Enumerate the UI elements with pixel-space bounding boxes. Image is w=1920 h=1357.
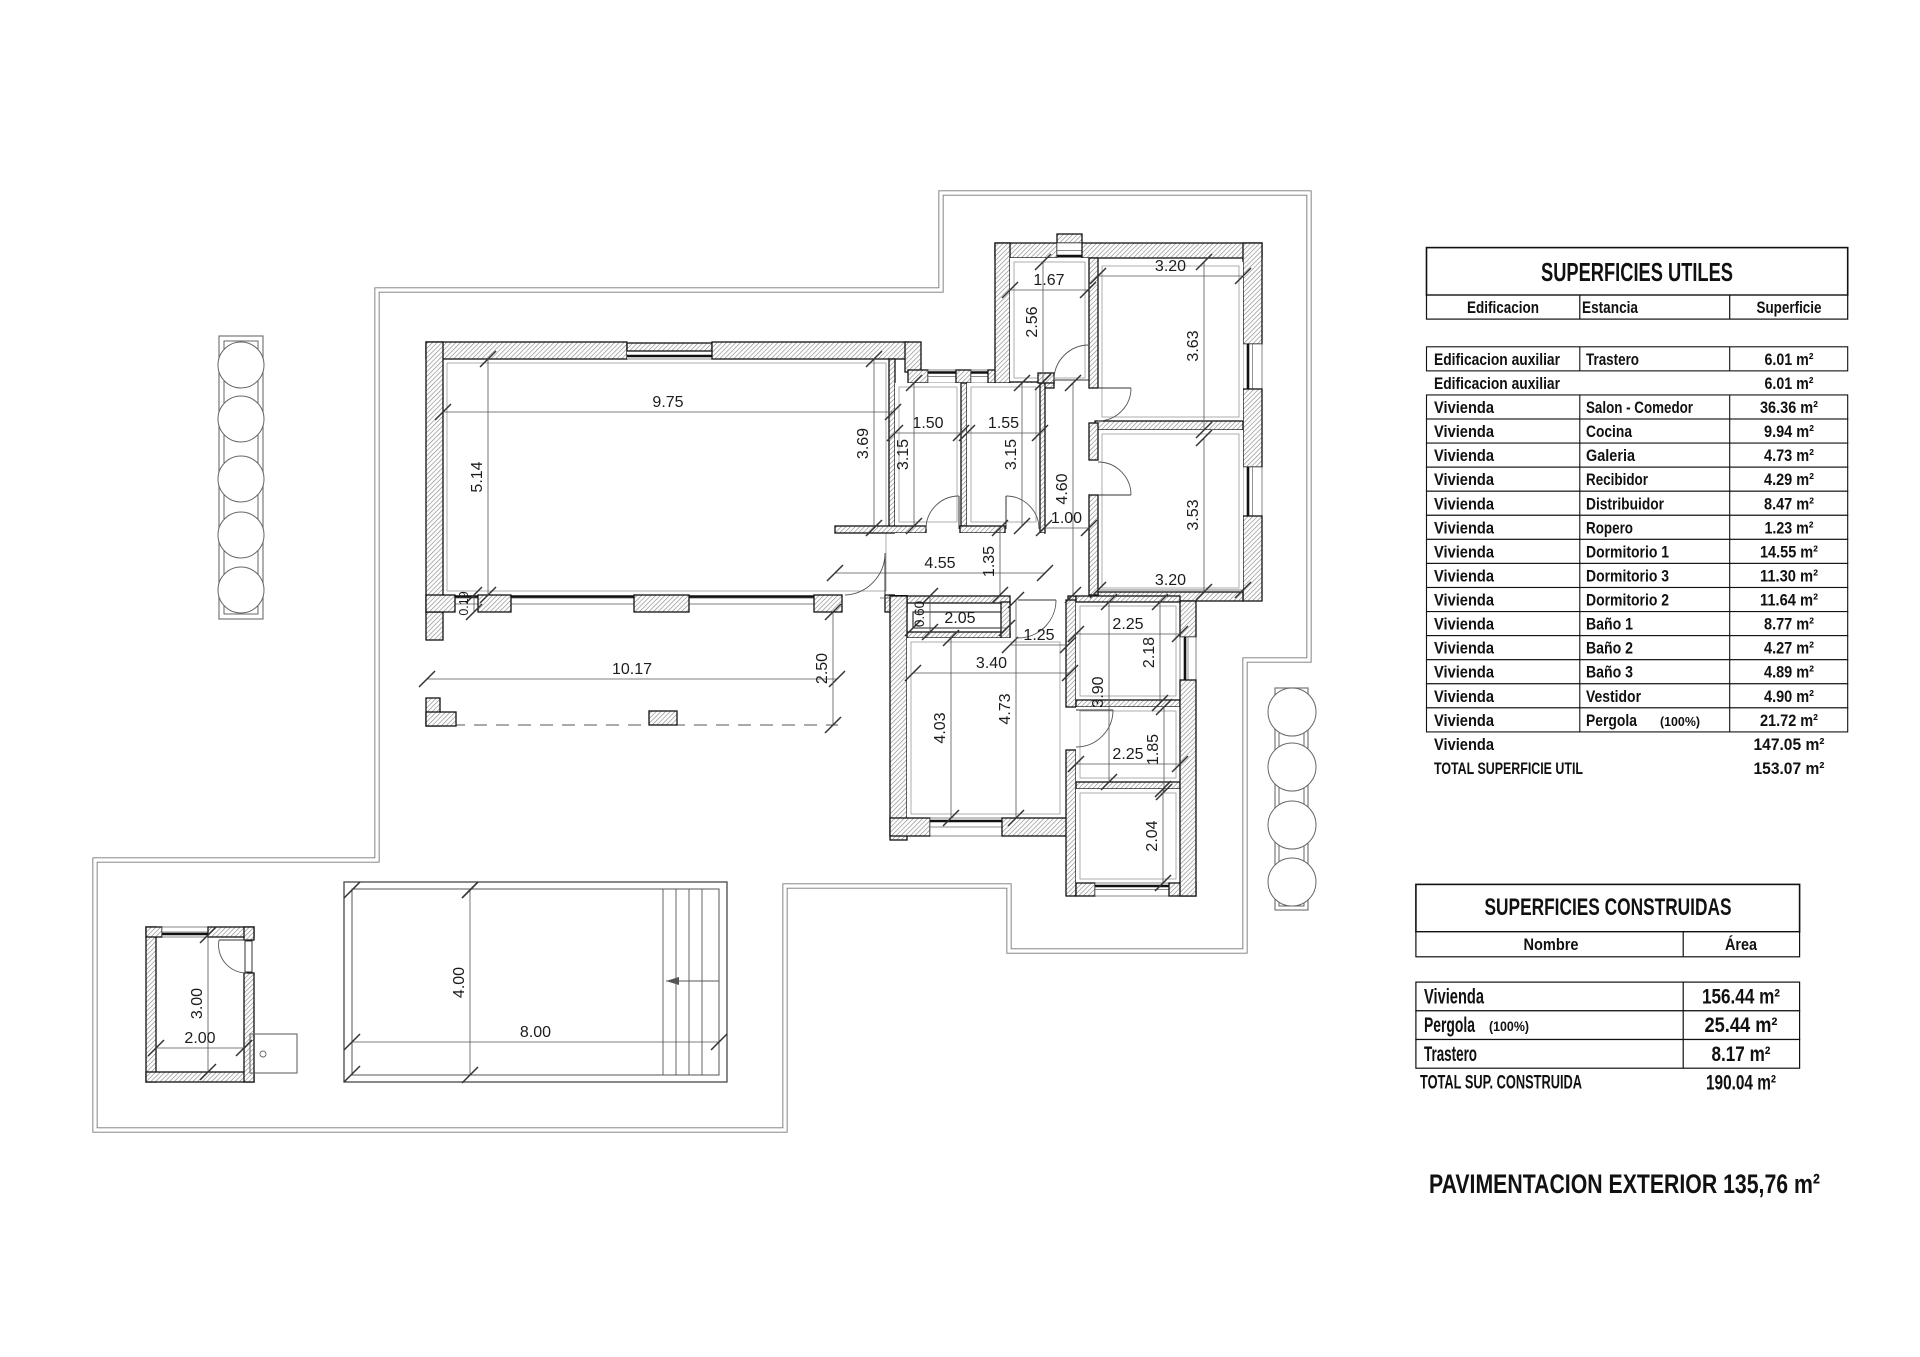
svg-text:1.23 m²: 1.23 m²: [1765, 518, 1814, 537]
svg-text:1.67: 1.67: [1033, 272, 1064, 289]
svg-text:Vivienda: Vivienda: [1434, 542, 1494, 561]
svg-text:4.89 m²: 4.89 m²: [1764, 663, 1814, 682]
svg-text:Baño 3: Baño 3: [1586, 663, 1633, 682]
svg-text:4.90 m²: 4.90 m²: [1764, 687, 1814, 706]
svg-text:Ropero: Ropero: [1586, 518, 1633, 537]
svg-text:Galeria: Galeria: [1586, 446, 1635, 465]
svg-text:Edificacion: Edificacion: [1467, 298, 1539, 317]
svg-text:Vivienda: Vivienda: [1434, 470, 1494, 489]
svg-text:14.55 m²: 14.55 m²: [1760, 542, 1818, 561]
svg-text:Estancia: Estancia: [1582, 298, 1638, 317]
svg-text:Vivienda: Vivienda: [1434, 711, 1494, 730]
svg-text:Nombre: Nombre: [1524, 935, 1579, 954]
svg-text:Vivienda: Vivienda: [1424, 985, 1484, 1008]
svg-text:Edificacion auxiliar: Edificacion auxiliar: [1434, 350, 1560, 369]
svg-text:Vivienda: Vivienda: [1434, 735, 1494, 754]
svg-text:5.14: 5.14: [469, 461, 486, 492]
svg-text:Dormitorio 3: Dormitorio 3: [1586, 566, 1669, 585]
svg-text:Recibidor: Recibidor: [1586, 470, 1648, 489]
svg-text:3.20: 3.20: [1155, 572, 1186, 589]
svg-text:2.25: 2.25: [1112, 746, 1143, 763]
svg-text:10.17: 10.17: [612, 661, 652, 678]
svg-text:4.60: 4.60: [1054, 473, 1071, 504]
svg-text:1.00: 1.00: [1051, 510, 1082, 527]
svg-text:1.85: 1.85: [1145, 734, 1162, 765]
svg-text:2.04: 2.04: [1144, 820, 1161, 851]
svg-text:4.27 m²: 4.27 m²: [1764, 639, 1814, 658]
svg-text:Área: Área: [1725, 935, 1757, 954]
svg-text:Vivienda: Vivienda: [1434, 687, 1494, 706]
svg-text:6.01 m²: 6.01 m²: [1765, 374, 1814, 393]
svg-text:SUPERFICIES UTILES: SUPERFICIES UTILES: [1541, 257, 1733, 287]
svg-text:4.73 m²: 4.73 m²: [1764, 446, 1814, 465]
svg-text:Salon - Comedor: Salon - Comedor: [1586, 398, 1693, 417]
svg-text:Vivienda: Vivienda: [1434, 615, 1494, 634]
svg-text:156.44 m²: 156.44 m²: [1702, 985, 1780, 1008]
svg-text:8.17 m²: 8.17 m²: [1712, 1043, 1771, 1066]
svg-text:11.64 m²: 11.64 m²: [1760, 591, 1818, 610]
svg-text:6.01 m²: 6.01 m²: [1765, 350, 1814, 369]
svg-text:2.25: 2.25: [1112, 616, 1143, 633]
svg-text:Vivienda: Vivienda: [1434, 422, 1494, 441]
svg-text:2.50: 2.50: [814, 653, 831, 684]
svg-text:Vivienda: Vivienda: [1434, 566, 1494, 585]
svg-text:36.36 m²: 36.36 m²: [1760, 398, 1818, 417]
svg-text:Vivienda: Vivienda: [1434, 518, 1494, 537]
svg-text:9.75: 9.75: [652, 394, 683, 411]
svg-text:3.15: 3.15: [1003, 439, 1020, 470]
svg-text:2.56: 2.56: [1024, 306, 1041, 337]
svg-text:2.18: 2.18: [1141, 637, 1158, 668]
svg-text:3.20: 3.20: [1155, 258, 1186, 275]
svg-text:3.69: 3.69: [855, 428, 872, 459]
svg-text:3.15: 3.15: [895, 439, 912, 470]
svg-text:4.29 m²: 4.29 m²: [1764, 470, 1814, 489]
svg-text:Vivienda: Vivienda: [1434, 663, 1494, 682]
svg-text:Distribuidor: Distribuidor: [1586, 494, 1664, 513]
svg-text:3.00: 3.00: [189, 988, 206, 1019]
svg-text:4.00: 4.00: [451, 967, 468, 998]
svg-text:Pergola: Pergola: [1586, 711, 1637, 730]
svg-text:190.04 m²: 190.04 m²: [1706, 1072, 1776, 1095]
svg-text:Pergola: Pergola: [1424, 1014, 1475, 1037]
svg-text:Trastero: Trastero: [1424, 1043, 1477, 1066]
svg-text:1.25: 1.25: [1023, 627, 1054, 644]
svg-text:0.60: 0.60: [912, 601, 927, 627]
svg-text:8.00: 8.00: [520, 1024, 551, 1041]
svg-text:2.00: 2.00: [184, 1030, 215, 1047]
svg-text:TOTAL SUPERFICIE UTIL: TOTAL SUPERFICIE UTIL: [1434, 759, 1583, 778]
svg-text:(100%): (100%): [1489, 1018, 1529, 1034]
svg-text:25.44 m²: 25.44 m²: [1705, 1014, 1778, 1037]
svg-text:Vivienda: Vivienda: [1434, 591, 1494, 610]
svg-text:153.07 m²: 153.07 m²: [1754, 759, 1825, 778]
svg-text:Baño 2: Baño 2: [1586, 639, 1633, 658]
svg-text:Cocina: Cocina: [1586, 422, 1632, 441]
svg-text:Trastero: Trastero: [1586, 350, 1639, 369]
svg-text:4.73: 4.73: [997, 693, 1014, 724]
svg-text:1.55: 1.55: [988, 415, 1019, 432]
svg-text:147.05 m²: 147.05 m²: [1754, 735, 1825, 754]
svg-text:Baño 1: Baño 1: [1586, 615, 1633, 634]
svg-text:21.72 m²: 21.72 m²: [1760, 711, 1818, 730]
svg-text:3.53: 3.53: [1185, 499, 1202, 530]
svg-text:Vestidor: Vestidor: [1586, 687, 1641, 706]
svg-text:2.05: 2.05: [944, 610, 975, 627]
svg-text:Dormitorio 1: Dormitorio 1: [1586, 542, 1669, 561]
svg-text:Vivienda: Vivienda: [1434, 639, 1494, 658]
svg-text:4.03: 4.03: [932, 712, 949, 743]
svg-text:1.50: 1.50: [912, 415, 943, 432]
svg-text:9.94 m²: 9.94 m²: [1764, 422, 1814, 441]
svg-text:0.19: 0.19: [457, 591, 471, 615]
svg-text:SUPERFICIES CONSTRUIDAS: SUPERFICIES CONSTRUIDAS: [1485, 894, 1732, 921]
svg-text:PAVIMENTACION EXTERIOR 135,76: PAVIMENTACION EXTERIOR 135,76 m²: [1429, 1169, 1820, 1199]
svg-text:(100%): (100%): [1660, 715, 1700, 729]
svg-text:Dormitorio 2: Dormitorio 2: [1586, 591, 1669, 610]
svg-text:3.63: 3.63: [1185, 330, 1202, 361]
svg-text:11.30 m²: 11.30 m²: [1760, 566, 1818, 585]
svg-text:Vivienda: Vivienda: [1434, 494, 1494, 513]
svg-text:1.35: 1.35: [981, 546, 998, 577]
svg-text:Vivienda: Vivienda: [1434, 398, 1494, 417]
svg-text:8.77 m²: 8.77 m²: [1764, 615, 1814, 634]
svg-text:Superficie: Superficie: [1757, 298, 1822, 317]
svg-text:Vivienda: Vivienda: [1434, 446, 1494, 465]
svg-text:3.90: 3.90: [1090, 676, 1107, 707]
svg-text:3.40: 3.40: [976, 655, 1007, 672]
svg-text:8.47 m²: 8.47 m²: [1764, 494, 1814, 513]
svg-text:Edificacion auxiliar: Edificacion auxiliar: [1434, 374, 1560, 393]
svg-text:TOTAL SUP. CONSTRUIDA: TOTAL SUP. CONSTRUIDA: [1420, 1073, 1582, 1094]
svg-text:4.55: 4.55: [924, 555, 955, 572]
